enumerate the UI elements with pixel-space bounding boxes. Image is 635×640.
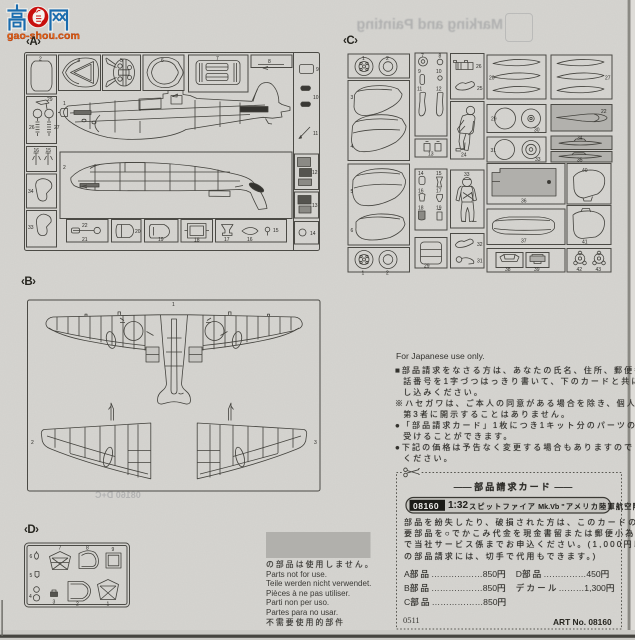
svg-text:43: 43: [596, 267, 602, 273]
svg-text:14: 14: [418, 171, 424, 177]
svg-text:8: 8: [439, 54, 442, 60]
svg-text:16: 16: [34, 148, 40, 154]
svg-text:9: 9: [112, 547, 115, 553]
svg-text:33: 33: [28, 225, 34, 231]
svg-text:22: 22: [601, 109, 607, 115]
svg-text:36: 36: [521, 199, 527, 205]
svg-text:4: 4: [78, 58, 81, 64]
svg-text:27: 27: [54, 125, 60, 131]
svg-text:37: 37: [521, 239, 527, 245]
svg-text:32: 32: [477, 242, 483, 248]
svg-text:9: 9: [316, 67, 319, 73]
svg-text:6: 6: [351, 228, 354, 234]
svg-text:33: 33: [535, 157, 541, 163]
svg-text:1: 1: [362, 56, 365, 62]
svg-text:4: 4: [351, 144, 354, 150]
svg-text:12: 12: [312, 170, 318, 176]
svg-text:34: 34: [28, 189, 34, 195]
svg-text:7: 7: [216, 56, 219, 62]
svg-text:1: 1: [172, 302, 175, 308]
svg-text:20: 20: [135, 229, 141, 235]
svg-text:40: 40: [582, 168, 588, 174]
svg-text:24: 24: [461, 153, 467, 159]
svg-text:gao-shou.com: gao-shou.com: [7, 30, 80, 42]
svg-text:15: 15: [436, 171, 442, 177]
svg-text:10: 10: [436, 69, 442, 75]
svg-text:2: 2: [63, 165, 66, 171]
svg-text:35: 35: [577, 158, 583, 164]
svg-text:15: 15: [46, 148, 52, 154]
svg-text:3: 3: [351, 95, 354, 101]
svg-text:20: 20: [489, 76, 495, 82]
svg-text:29: 29: [47, 97, 53, 103]
svg-text:2: 2: [39, 57, 42, 63]
svg-text:18: 18: [194, 238, 200, 244]
svg-text:29: 29: [491, 117, 497, 123]
svg-text:26: 26: [29, 125, 35, 131]
svg-text:29: 29: [424, 264, 430, 270]
svg-text:8: 8: [268, 59, 271, 65]
svg-text:2: 2: [76, 602, 79, 608]
svg-text:9: 9: [418, 69, 421, 75]
svg-text:33: 33: [464, 172, 470, 178]
svg-text:31: 31: [491, 148, 497, 154]
svg-text:8: 8: [86, 546, 89, 552]
svg-text:34: 34: [577, 136, 583, 142]
svg-text:2: 2: [386, 271, 389, 277]
svg-text:2: 2: [31, 440, 34, 446]
svg-text:5: 5: [351, 189, 354, 195]
svg-text:39: 39: [534, 267, 540, 273]
svg-text:15: 15: [273, 228, 279, 234]
svg-text:11: 11: [313, 131, 318, 137]
svg-text:1: 1: [63, 101, 66, 107]
svg-text:19: 19: [436, 206, 442, 212]
svg-text:42: 42: [577, 267, 583, 273]
svg-text:10: 10: [313, 95, 319, 101]
svg-text:14: 14: [310, 231, 316, 237]
svg-text:1: 1: [362, 271, 365, 277]
svg-text:1: 1: [107, 602, 110, 608]
svg-text:5: 5: [120, 58, 123, 64]
svg-text:31: 31: [477, 259, 483, 265]
svg-text:7: 7: [59, 546, 62, 552]
svg-text:30: 30: [534, 128, 540, 134]
svg-text:38: 38: [505, 267, 511, 273]
svg-text:6: 6: [161, 58, 164, 64]
svg-text:22: 22: [82, 223, 88, 229]
svg-text:17: 17: [224, 237, 230, 243]
svg-text:25: 25: [477, 86, 483, 92]
svg-text:12: 12: [436, 87, 442, 93]
svg-text:5: 5: [30, 573, 33, 579]
svg-text:17: 17: [436, 189, 442, 195]
svg-text:13: 13: [428, 152, 434, 158]
svg-text:11: 11: [417, 87, 422, 93]
svg-text:27: 27: [605, 76, 611, 82]
svg-text:41: 41: [582, 240, 588, 246]
svg-text:6: 6: [30, 554, 33, 560]
svg-text:18: 18: [418, 206, 424, 212]
svg-text:4: 4: [29, 594, 32, 600]
svg-text:19: 19: [158, 237, 164, 243]
svg-text:13: 13: [312, 203, 318, 209]
svg-text:26: 26: [476, 64, 482, 70]
svg-text:3: 3: [53, 600, 56, 606]
svg-text:3: 3: [314, 440, 317, 446]
svg-text:21: 21: [82, 237, 88, 243]
svg-text:2: 2: [386, 56, 389, 62]
svg-text:16: 16: [247, 237, 253, 243]
svg-text:7: 7: [421, 54, 424, 60]
svg-text:16: 16: [418, 189, 424, 195]
